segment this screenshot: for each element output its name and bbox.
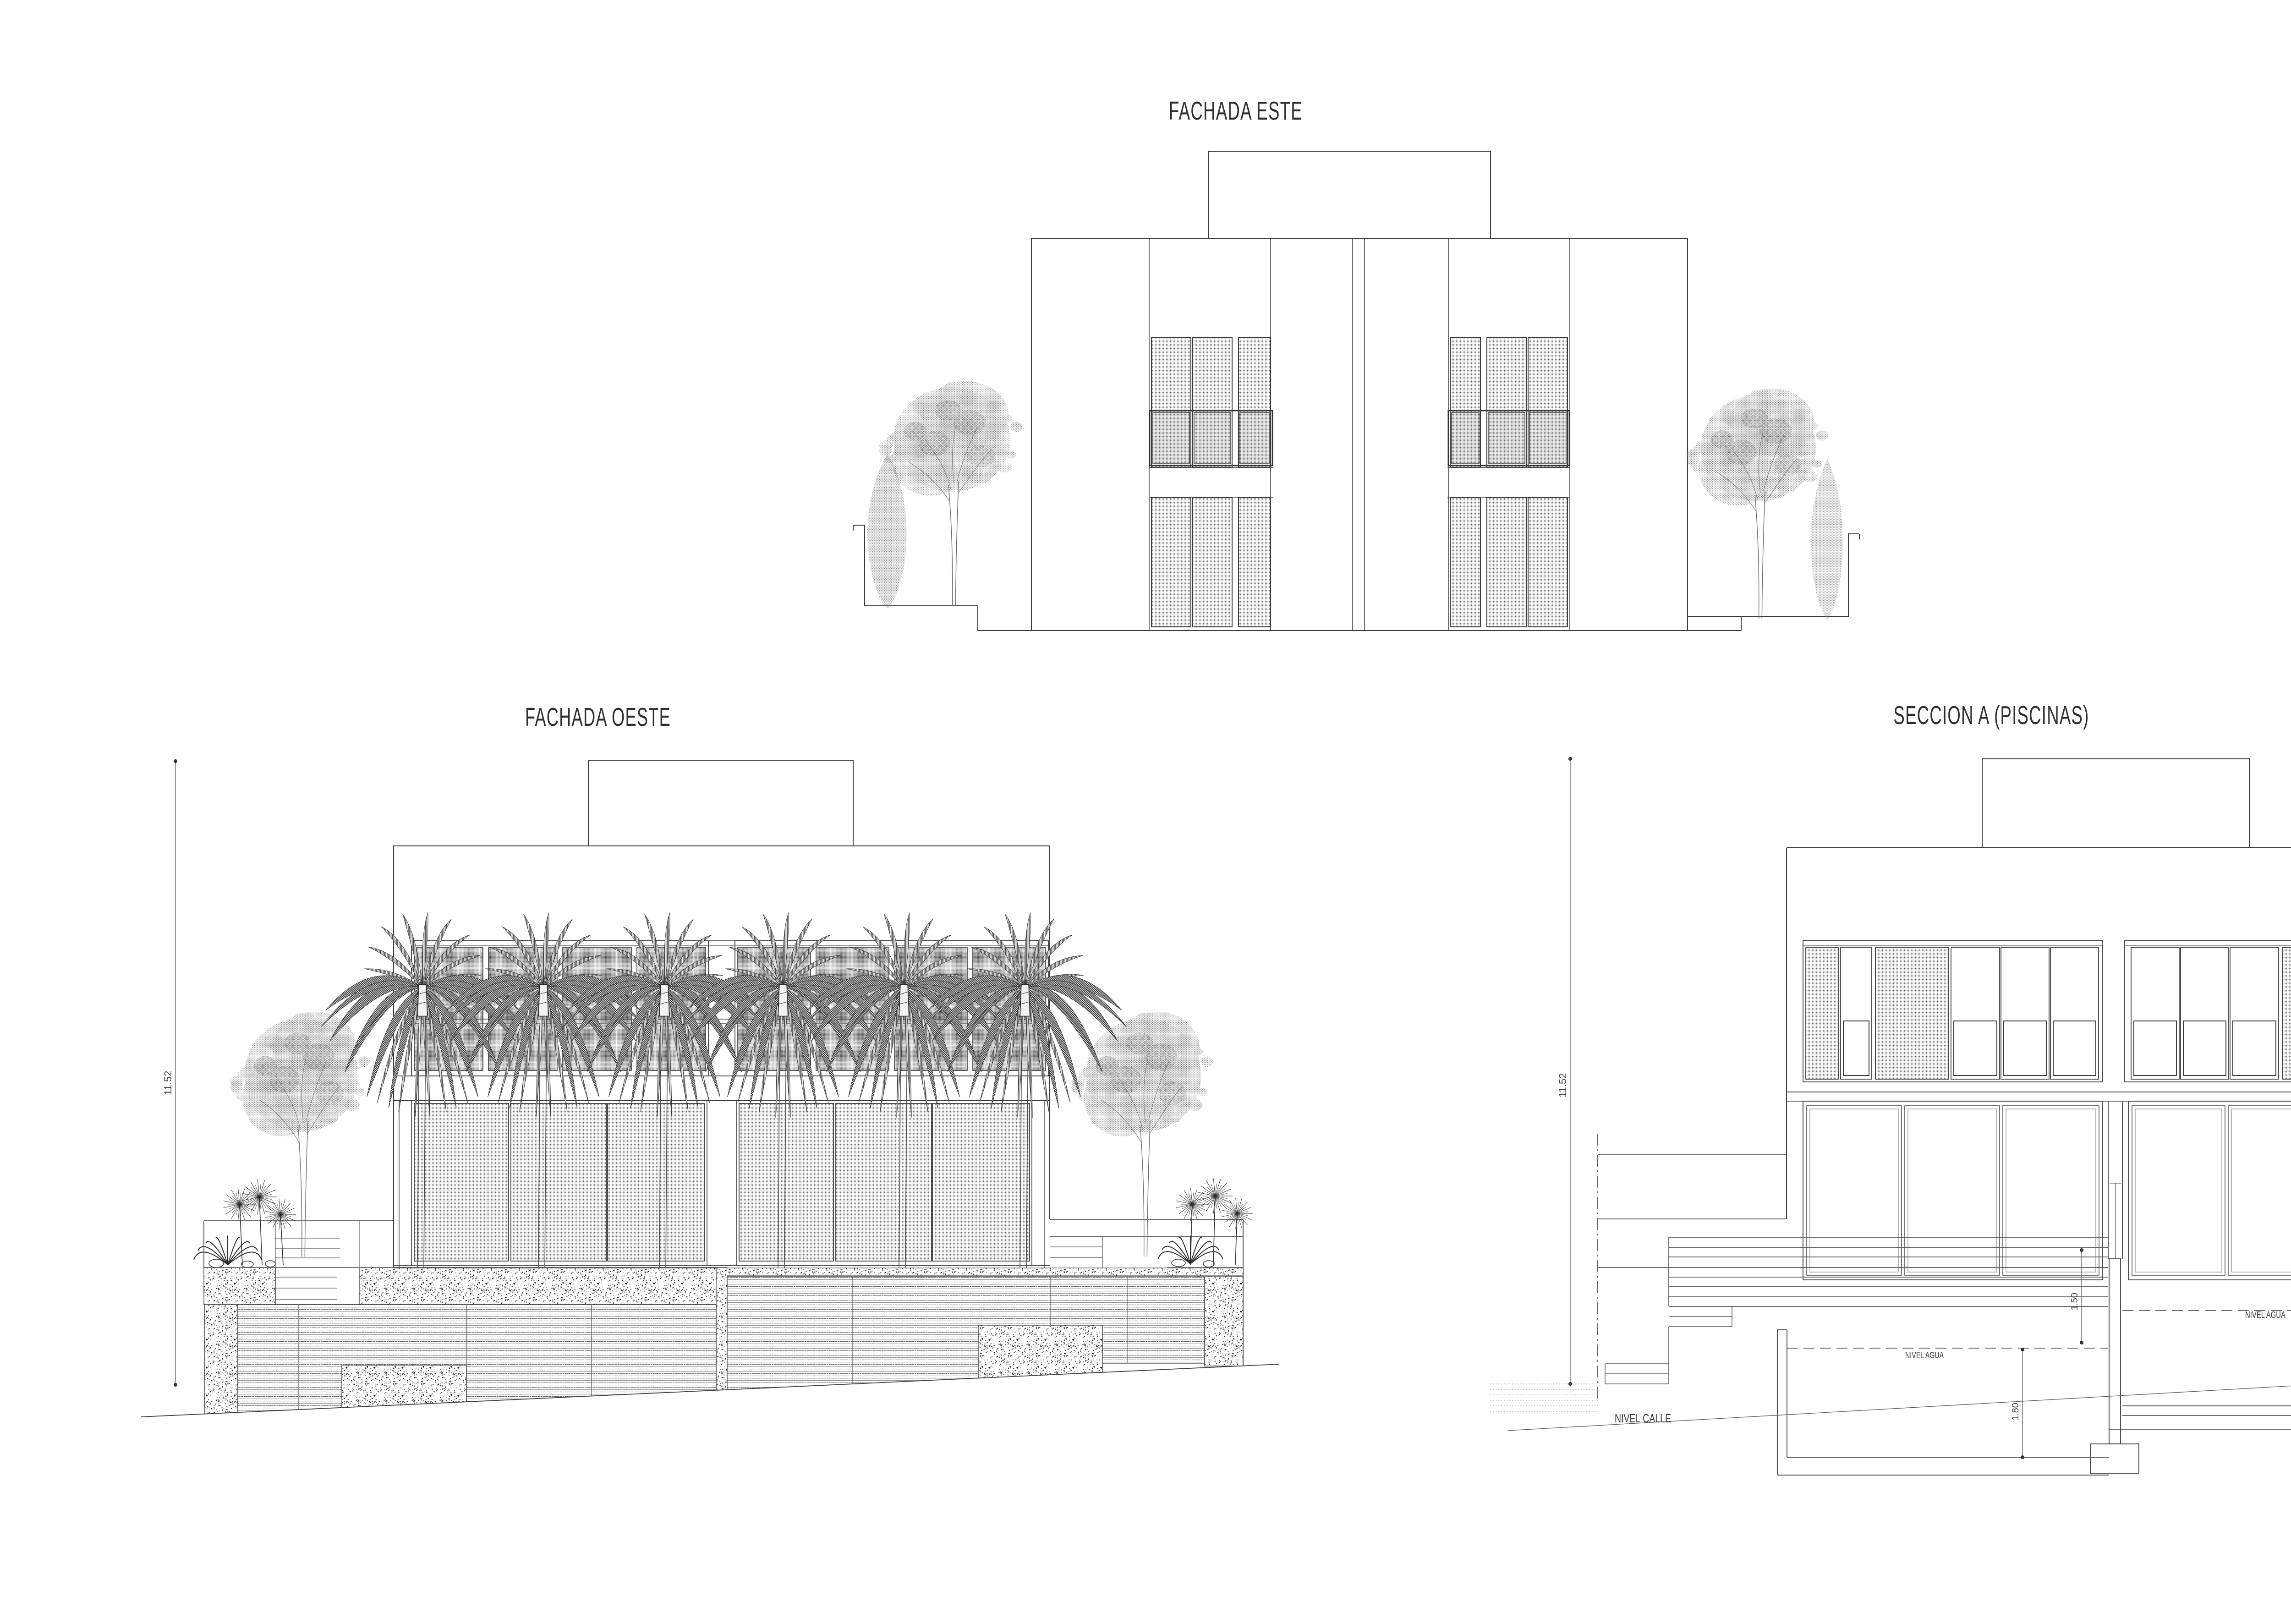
svg-text:NIVEL AGUA: NIVEL AGUA [1905, 1350, 1944, 1361]
svg-text:FACHADA ESTE: FACHADA ESTE [1169, 96, 1303, 126]
svg-text:1.80: 1.80 [2011, 1403, 2021, 1421]
svg-text:11.52: 11.52 [1557, 1073, 1568, 1097]
svg-text:SECCION A (PISCINAS): SECCION A (PISCINAS) [1894, 701, 2089, 730]
svg-text:11.52: 11.52 [162, 1071, 174, 1095]
svg-text:FACHADA OESTE: FACHADA OESTE [525, 702, 671, 732]
svg-text:NIVEL AGUA: NIVEL AGUA [2245, 1310, 2286, 1320]
svg-text:1.50: 1.50 [2070, 1293, 2080, 1311]
